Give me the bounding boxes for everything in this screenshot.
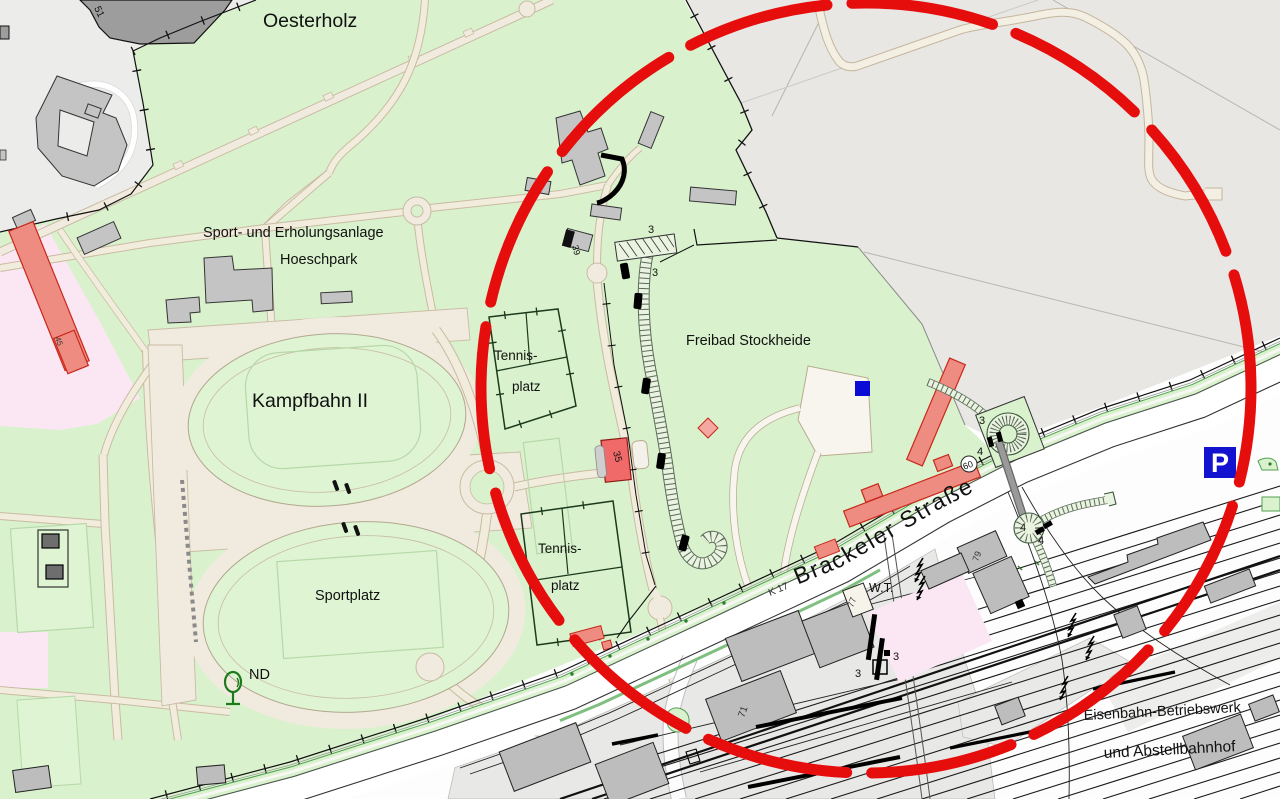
svg-text:3: 3 [648,224,654,236]
svg-text:3: 3 [652,267,658,279]
svg-text:P: P [1211,448,1229,478]
svg-text:Freibad Stockheide: Freibad Stockheide [686,333,811,349]
svg-text:Oesterholz: Oesterholz [263,10,357,32]
svg-text:Kampfbahn II: Kampfbahn II [252,390,368,412]
svg-text:4: 4 [977,446,983,458]
svg-text:Sportplatz: Sportplatz [315,588,380,604]
svg-text:3: 3 [893,651,899,663]
svg-text:4: 4 [1038,535,1044,547]
svg-text:3: 3 [979,415,985,427]
svg-text:platz: platz [551,578,580,593]
svg-text:Hoeschpark: Hoeschpark [280,252,358,268]
svg-text:ND: ND [249,667,270,683]
svg-text:platz: platz [512,379,541,394]
svg-text:3: 3 [855,668,861,680]
svg-text:Sport- und Erholungsanlage: Sport- und Erholungsanlage [203,225,384,241]
svg-text:Tennis-: Tennis- [538,541,582,556]
svg-text:4: 4 [1020,522,1026,534]
svg-text:Tennis-: Tennis- [494,348,538,363]
svg-text:W.T.: W.T. [869,581,893,595]
